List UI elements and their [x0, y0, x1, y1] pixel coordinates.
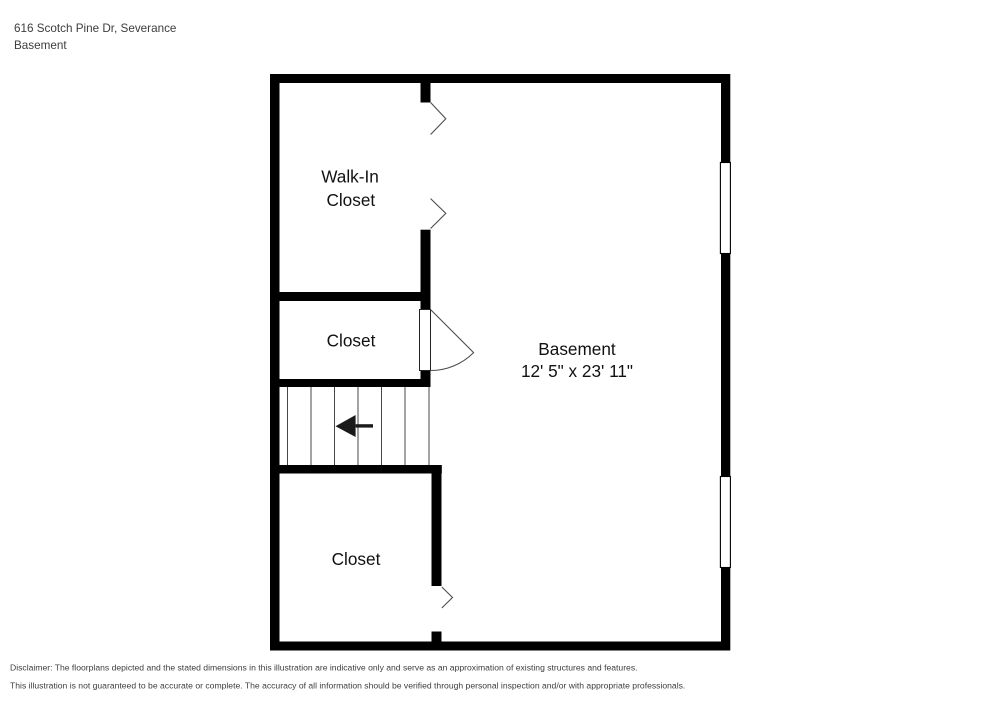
svg-text:Walk-In: Walk-In: [321, 167, 379, 187]
svg-text:Closet: Closet: [326, 190, 375, 210]
svg-text:Basement: Basement: [14, 39, 67, 52]
svg-text:This illustration is not guara: This illustration is not guaranteed to b…: [10, 681, 685, 691]
svg-text:Closet: Closet: [332, 549, 381, 569]
svg-text:Closet: Closet: [327, 330, 376, 350]
svg-text:Basement: Basement: [538, 339, 616, 359]
svg-text:12' 5" x 23' 11": 12' 5" x 23' 11": [521, 361, 633, 381]
svg-text:616 Scotch Pine Dr, Severance: 616 Scotch Pine Dr, Severance: [14, 22, 176, 35]
svg-text:Disclaimer: The floorplans dep: Disclaimer: The floorplans depicted and …: [10, 662, 638, 672]
